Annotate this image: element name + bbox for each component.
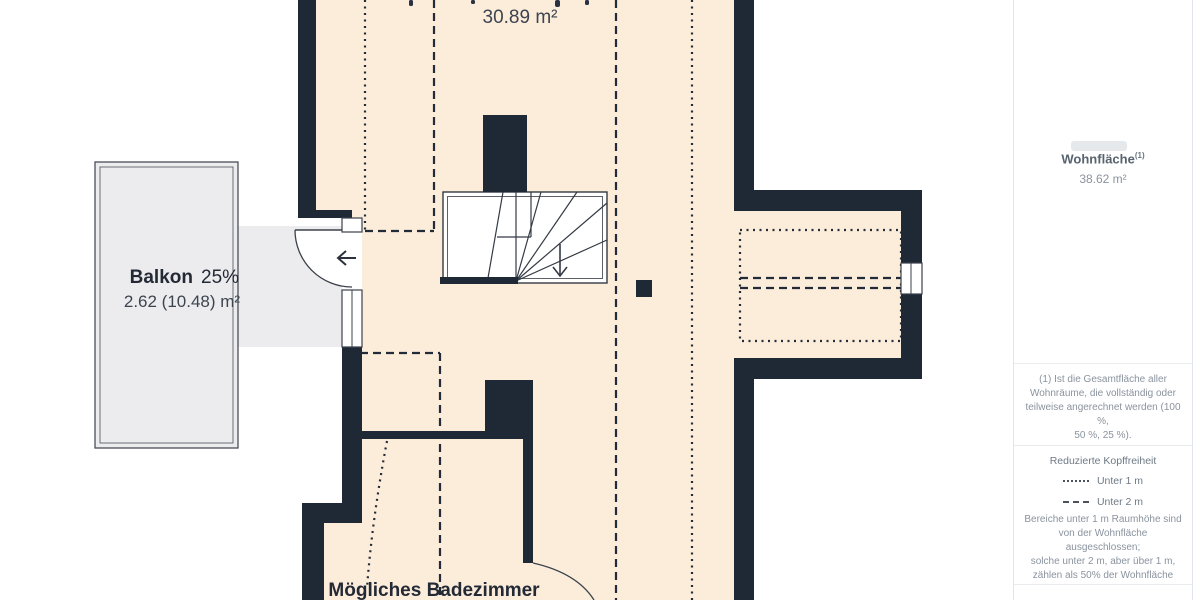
legend-item-under-1m: Unter 1 m	[1014, 475, 1192, 487]
balcony-name-label: Balkon	[130, 267, 193, 288]
living-area-heading: Wohnfläche(1)	[1014, 151, 1192, 166]
legend-title: Reduzierte Kopffreiheit	[1014, 455, 1192, 467]
dashed-line-sample	[1063, 501, 1089, 503]
chimney	[483, 115, 527, 192]
dotted-line-sample	[1063, 480, 1089, 482]
balcony-area-label: 2.62 (10.48) m²	[124, 292, 241, 311]
section-divider	[1014, 363, 1192, 364]
living-area-label: Wohnfläche	[1061, 151, 1134, 166]
section-divider	[1014, 584, 1192, 585]
bathroom-label: Mögliches Badezimmer	[328, 580, 540, 600]
balcony-percent-label: 25%	[201, 267, 239, 288]
wing-window	[901, 263, 922, 294]
main-room-area-label: 30.89 m²	[483, 7, 558, 28]
room-fill	[316, 0, 901, 600]
info-sidebar: Wohnfläche(1) 38.62 m² (1) Ist die Gesam…	[1013, 0, 1193, 600]
legend-item-label: Unter 2 m	[1097, 496, 1143, 508]
living-area-footnote-marker: (1)	[1135, 151, 1145, 160]
post	[636, 280, 652, 297]
balcony-door-frame	[342, 218, 362, 232]
legend-note: Bereiche unter 1 m Raumhöhe sind von der…	[1023, 513, 1183, 583]
legend-item-label: Unter 1 m	[1097, 475, 1143, 487]
section-divider	[1014, 445, 1192, 446]
living-area-summary: Wohnfläche(1) 38.62 m²	[1014, 151, 1192, 186]
staircase	[440, 192, 607, 284]
floor-plan-canvas[interactable]: 30.89 m² Balkon 25% 2.62 (10.48) m² Mögl…	[0, 0, 1000, 600]
balcony-window	[342, 290, 362, 347]
legend-item-under-2m: Unter 2 m	[1014, 496, 1192, 508]
floor-plan-viewer: 30.89 m² Balkon 25% 2.62 (10.48) m² Mögl…	[0, 0, 1200, 600]
footnote-text: (1) Ist die Gesamtfläche aller Wohnräume…	[1023, 373, 1183, 443]
cutoff-thumbnail	[1071, 141, 1127, 151]
living-area-value: 38.62 m²	[1014, 172, 1192, 186]
